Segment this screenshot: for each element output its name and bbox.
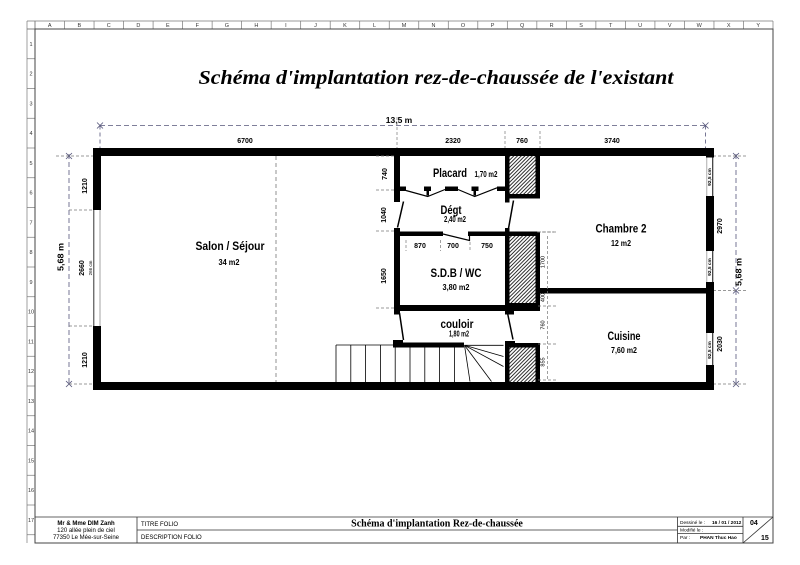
svg-text:17: 17 — [28, 518, 34, 524]
svg-text:X: X — [727, 23, 731, 29]
svg-text:4: 4 — [29, 131, 32, 137]
svg-text:DESCRIPTION FOLIO: DESCRIPTION FOLIO — [141, 535, 202, 541]
svg-text:8: 8 — [29, 250, 32, 256]
svg-text:5,68 m: 5,68 m — [735, 258, 744, 286]
svg-text:13: 13 — [28, 399, 34, 405]
svg-text:04: 04 — [750, 520, 758, 527]
svg-text:P: P — [491, 23, 495, 29]
svg-text:34 m2: 34 m2 — [219, 257, 240, 267]
svg-text:2660: 2660 — [79, 260, 86, 276]
svg-text:266 cm: 266 cm — [88, 260, 93, 275]
svg-text:92,5 cm: 92,5 cm — [707, 341, 713, 359]
svg-text:Schéma d'implantation Rez-de-c: Schéma d'implantation Rez-de-chaussée — [351, 519, 523, 530]
svg-text:92,5 cm: 92,5 cm — [707, 168, 713, 186]
svg-text:855: 855 — [541, 357, 547, 366]
svg-text:Dessiné le :: Dessiné le : — [680, 520, 705, 526]
svg-text:400: 400 — [541, 293, 547, 302]
svg-text:Placard: Placard — [433, 168, 467, 180]
svg-text:S: S — [579, 23, 583, 29]
svg-text:5,68 m: 5,68 m — [57, 243, 66, 271]
svg-text:120 allée plein de ciel: 120 allée plein de ciel — [57, 528, 115, 534]
svg-text:W: W — [697, 23, 703, 29]
svg-text:Modifié le :: Modifié le : — [680, 528, 703, 534]
svg-text:2: 2 — [29, 72, 32, 78]
svg-text:5: 5 — [29, 161, 32, 167]
svg-text:Par :: Par : — [680, 535, 690, 541]
svg-text:1,80 m2: 1,80 m2 — [449, 329, 469, 339]
svg-text:9: 9 — [29, 280, 32, 286]
svg-text:870: 870 — [414, 243, 426, 250]
svg-text:B: B — [77, 23, 81, 29]
svg-text:6: 6 — [29, 191, 32, 197]
svg-text:U: U — [638, 23, 642, 29]
svg-text:Y: Y — [756, 23, 760, 29]
svg-text:A: A — [48, 23, 52, 29]
svg-text:1210: 1210 — [82, 352, 89, 368]
svg-text:77350 Le Mée-sur-Seine: 77350 Le Mée-sur-Seine — [53, 535, 120, 541]
svg-text:10: 10 — [28, 310, 34, 316]
svg-text:M: M — [402, 23, 407, 29]
svg-text:Schéma d'implantation rez-de-c: Schéma d'implantation rez-de-chaussée de… — [199, 68, 675, 89]
svg-text:2,40 m2: 2,40 m2 — [444, 214, 466, 224]
svg-text:1210: 1210 — [82, 178, 89, 194]
svg-text:Q: Q — [520, 23, 525, 29]
svg-text:3: 3 — [29, 101, 32, 107]
svg-text:Salon / Séjour: Salon / Séjour — [196, 241, 265, 253]
svg-text:700: 700 — [447, 243, 459, 250]
svg-text:1,70 m2: 1,70 m2 — [475, 169, 498, 179]
svg-text:S.D.B / WC: S.D.B / WC — [431, 268, 482, 280]
svg-text:760: 760 — [516, 138, 528, 145]
svg-text:1700: 1700 — [541, 256, 547, 268]
svg-text:1: 1 — [29, 42, 32, 48]
svg-text:12: 12 — [28, 369, 34, 375]
svg-text:92,5 cm: 92,5 cm — [707, 258, 713, 276]
svg-text:Cuisine: Cuisine — [608, 331, 641, 343]
svg-text:2320: 2320 — [445, 138, 461, 145]
svg-text:760: 760 — [541, 320, 547, 329]
svg-text:V: V — [668, 23, 672, 29]
svg-text:7: 7 — [29, 220, 32, 226]
svg-text:1650: 1650 — [381, 268, 388, 284]
svg-text:740: 740 — [382, 168, 389, 180]
svg-text:R: R — [550, 23, 554, 29]
svg-text:2970: 2970 — [717, 218, 724, 234]
svg-text:Mr & Mme DIM Zanh: Mr & Mme DIM Zanh — [57, 521, 115, 527]
svg-text:K: K — [343, 23, 347, 29]
svg-text:13,5 m: 13,5 m — [386, 115, 413, 125]
svg-text:J: J — [314, 23, 317, 29]
svg-text:15: 15 — [761, 535, 769, 542]
svg-text:E: E — [166, 23, 170, 29]
svg-text:7,60 m2: 7,60 m2 — [611, 345, 637, 355]
svg-text:16 / 01 / 2012: 16 / 01 / 2012 — [712, 520, 742, 526]
svg-text:PHAN Thuc Hao: PHAN Thuc Hao — [700, 535, 737, 541]
svg-text:D: D — [136, 23, 140, 29]
svg-text:6700: 6700 — [237, 138, 253, 145]
svg-text:O: O — [461, 23, 466, 29]
svg-text:750: 750 — [481, 243, 493, 250]
svg-text:TITRE FOLIO: TITRE FOLIO — [141, 522, 178, 528]
svg-text:3,80 m2: 3,80 m2 — [443, 282, 470, 292]
svg-text:N: N — [432, 23, 436, 29]
svg-text:Chambre 2: Chambre 2 — [596, 224, 647, 236]
svg-text:H: H — [254, 23, 258, 29]
svg-text:C: C — [107, 23, 111, 29]
svg-text:15: 15 — [28, 458, 34, 464]
svg-text:11: 11 — [28, 339, 34, 345]
svg-text:12 m2: 12 m2 — [611, 238, 631, 248]
svg-text:14: 14 — [28, 429, 34, 435]
svg-text:L: L — [373, 23, 376, 29]
svg-text:3740: 3740 — [604, 138, 620, 145]
svg-text:16: 16 — [28, 488, 34, 494]
svg-text:G: G — [225, 23, 229, 29]
svg-text:2030: 2030 — [717, 336, 724, 352]
svg-text:1040: 1040 — [381, 207, 388, 223]
